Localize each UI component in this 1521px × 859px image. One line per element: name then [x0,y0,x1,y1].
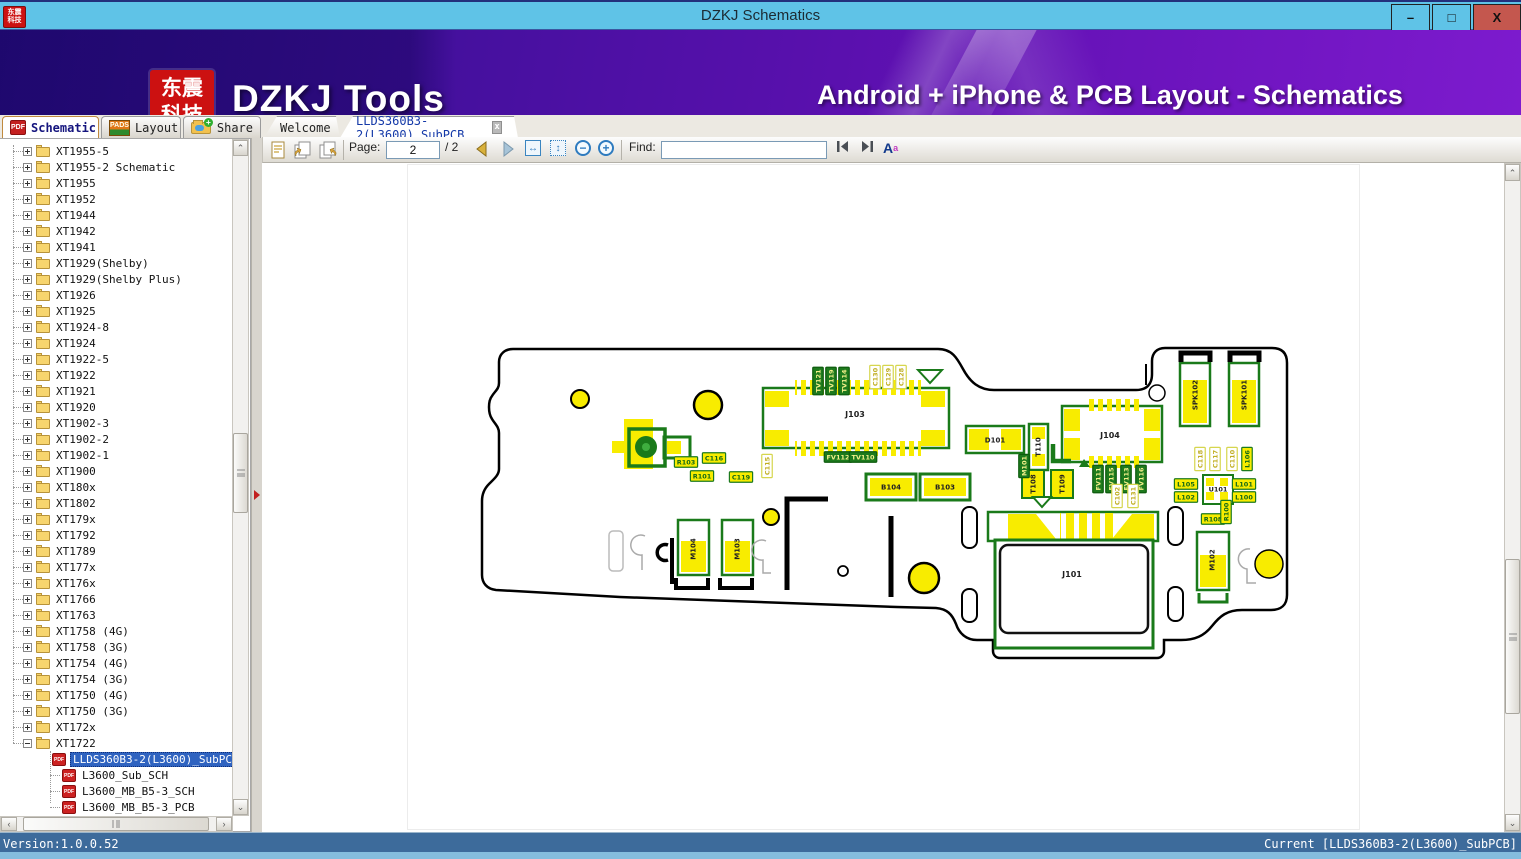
match-case-icon[interactable]: Aa [883,140,898,156]
folder-icon [36,385,51,397]
svg-text:TV114: TV114 [840,369,848,393]
tree-item-label: XT1922-5 [54,353,111,366]
expand-icon[interactable] [23,211,32,220]
brand-banner: 东震科技 DZKJ Tools Android + iPhone & PCB L… [0,30,1521,115]
tree-item-label: XT1941 [54,241,98,254]
tree-item-label: XT176x [54,577,98,590]
tree-item-label: XT1922 [54,369,98,382]
folder-icon [36,561,51,573]
expand-icon[interactable] [23,675,32,684]
pcb-drawing: TV121TV119TV114C130C129C128FV112TV110R10… [262,163,1504,832]
folder-icon [36,417,51,429]
tree-item-label: XT172x [54,721,98,734]
text-select-icon[interactable] [268,140,288,160]
expand-icon[interactable] [23,403,32,412]
tree-item-folder[interactable]: XT1722 [0,735,233,751]
previous-page-button[interactable] [473,140,491,158]
expand-icon[interactable] [23,243,32,252]
svg-text:J103: J103 [844,410,865,419]
tree-item-folder[interactable]: XT177x [0,559,233,575]
tree-item-pdf[interactable]: PDFL3600_Sub_SCH [0,767,233,783]
expand-icon[interactable] [23,339,32,348]
folder-icon [36,337,51,349]
next-page-button[interactable] [499,140,517,158]
expand-icon[interactable] [23,291,32,300]
viewer-vscroll-thumb[interactable] [1505,559,1520,714]
folder-icon [36,449,51,461]
tree-item-label: XT1942 [54,225,98,238]
expand-icon[interactable] [23,595,32,604]
tree-item-folder[interactable]: XT1802 [0,495,233,511]
expand-icon[interactable] [23,643,32,652]
tree-item-folder[interactable]: XT1789 [0,543,233,559]
tree-item-label: XT1924-8 [54,321,111,334]
tab-document-active[interactable]: LLDS360B3-2(L3600)_SubPCB x [340,116,518,138]
expand-icon[interactable] [23,659,32,668]
tree-item-label: XT1754 (4G) [54,657,131,670]
tree-item-folder[interactable]: XT1902-2 [0,431,233,447]
svg-text:C130: C130 [871,367,879,386]
tree-item-folder[interactable]: XT1955-5 [0,143,233,159]
tree-item-folder[interactable]: XT1921 [0,383,233,399]
viewer-scroll-up-icon[interactable]: ⌃ [1505,164,1520,181]
tab-welcome-label: Welcome [280,121,331,135]
collapse-arrow-icon[interactable] [254,490,260,500]
tree-item-label: XT1944 [54,209,98,222]
tree-item-folder[interactable]: XT1766 [0,591,233,607]
tree-item-label: XT1955-5 [54,145,111,158]
folder-icon [36,497,51,509]
tree-item-label: XT1900 [54,465,98,478]
next-view-icon[interactable] [317,140,339,160]
tree-item-label: XT1754 (3G) [54,673,131,686]
tree-item-folder[interactable]: XT176x [0,575,233,591]
tree-item-folder[interactable]: XT1929(Shelby Plus) [0,271,233,287]
app-window: 东震科技 DZKJ Schematics – □ X 东震科技 DZKJ Too… [0,0,1521,859]
svg-text:C110: C110 [1228,449,1236,468]
folder-icon [36,193,51,205]
expand-icon[interactable] [23,467,32,476]
scroll-up-icon[interactable]: ⌃ [233,140,248,156]
tree-item-label: L3600_Sub_SCH [80,769,170,782]
brand-title: DZKJ Tools [232,78,445,115]
tree-vertical-scrollbar[interactable]: ⌃ ⌄ [232,139,249,816]
pads-icon: PADS [109,120,130,136]
svg-text:M102: M102 [1209,549,1217,571]
banner-tagline: Android + iPhone & PCB Layout - Schemati… [790,80,1430,111]
find-previous-icon[interactable] [835,140,851,154]
viewer-toolbar: Page: / 2 ↔ ↕ − + Find: Aa [262,137,1521,163]
folder-icon [36,593,51,605]
expand-icon[interactable] [23,275,32,284]
svg-text:B103: B103 [935,484,955,492]
tree-item-folder[interactable]: XT1902-3 [0,415,233,431]
tree-item-label: XT1766 [54,593,98,606]
folder-icon [36,529,51,541]
folder-icon [36,353,51,365]
tree-vscroll-thumb[interactable] [233,433,248,513]
scroll-right-icon[interactable]: › [216,817,232,831]
expand-icon[interactable] [23,579,32,588]
tree-item-label: XT1722 [54,737,98,750]
tree-item-label: XT1929(Shelby Plus) [54,273,184,286]
tree-item-label: XT1926 [54,289,98,302]
svg-text:J104: J104 [1099,431,1120,440]
expand-icon[interactable] [23,227,32,236]
tree-item-folder[interactable]: XT1941 [0,239,233,255]
folder-icon [36,737,51,749]
tree-item-folder[interactable]: XT1900 [0,463,233,479]
svg-text:L101: L101 [1235,480,1253,488]
dzkj-logo: 东震科技 [150,70,214,115]
tree-hscroll-thumb[interactable] [23,817,209,831]
svg-text:U101: U101 [1209,485,1228,493]
expand-icon[interactable] [23,307,32,316]
status-bar: Version:1.0.0.52 Current [LLDS360B3-2(L3… [0,832,1521,859]
folder-icon [36,273,51,285]
svg-text:J101: J101 [1061,570,1082,579]
tree-item-folder[interactable]: XT1926 [0,287,233,303]
svg-text:C116: C116 [705,454,724,462]
tree-item-label: XT1925 [54,305,98,318]
tree-item-label: L3600_MB_B5-3_PCB [80,801,197,814]
page-number-input[interactable] [386,141,440,159]
tree-item-folder[interactable]: XT1924-8 [0,319,233,335]
fit-width-button[interactable]: ↔ [525,140,541,156]
expand-icon[interactable] [23,179,32,188]
svg-text:T109: T109 [1059,474,1067,494]
svg-text:L100: L100 [1235,493,1253,501]
folder-icon [36,609,51,621]
expand-icon[interactable] [23,323,32,332]
current-file-text: Current [LLDS360B3-2(L3600)_SubPCB] [1264,837,1517,851]
svg-text:M104: M104 [690,538,698,560]
svg-text:R100: R100 [1222,502,1230,521]
folder-icon [36,625,51,637]
tree-item-folder[interactable]: XT172x [0,719,233,735]
svg-text:TV119: TV119 [827,369,835,393]
tree-item-folder[interactable]: XT1920 [0,399,233,415]
tree-item-label: XT1902-3 [54,417,111,430]
expand-icon[interactable] [23,371,32,380]
tree-item-label: XT179x [54,513,98,526]
expand-icon[interactable] [23,547,32,556]
tab-schematic-label: Schematic [31,121,96,135]
scroll-left-icon[interactable]: ‹ [1,817,17,831]
tree-item-pdf[interactable]: PDFL3600_MB_B5-3_PCB [0,799,233,815]
share-folder-icon: + [191,120,212,135]
folder-tree: XT1955-5XT1955-2 SchematicXT1955XT1952XT… [0,139,233,816]
tree-item-label: XT1802 [54,497,98,510]
tree-item-label: XT1792 [54,529,98,542]
tree-item-folder[interactable]: XT1929(Shelby) [0,255,233,271]
folder-icon [36,673,51,685]
folder-icon [36,465,51,477]
tree-item-folder[interactable]: XT1924 [0,335,233,351]
schematic-tree-panel: XT1955-5XT1955-2 SchematicXT1955XT1952XT… [0,138,251,832]
tab-welcome[interactable]: Welcome [264,116,340,138]
tab-close-icon[interactable]: x [492,121,502,134]
expand-icon[interactable] [23,707,32,716]
pcb-connector-j101 [988,512,1158,648]
svg-text:C119: C119 [732,473,751,481]
tree-item-folder[interactable]: XT1955 [0,175,233,191]
expand-icon[interactable] [23,627,32,636]
tree-item-pdf[interactable]: PDFL3600_MB_B5-3_SCH [0,783,233,799]
tree-item-folder[interactable]: XT180x [0,479,233,495]
tree-item-label: XT180x [54,481,98,494]
tree-item-label: XT1920 [54,401,98,414]
pdf-file-icon: PDF [52,753,66,766]
fit-page-button[interactable]: ↕ [550,140,566,156]
svg-text:SPK101: SPK101 [1241,380,1249,410]
svg-text:R108: R108 [1204,515,1223,523]
tab-layout[interactable]: PADS Layout [101,116,181,138]
tree-item-label: XT1902-1 [54,449,111,462]
tree-item-label: LLDS360B3-2(L3600)_SubPCB [70,752,233,767]
svg-text:C128: C128 [897,367,905,386]
tree-horizontal-scrollbar[interactable]: ‹ › [0,816,233,832]
tree-item-folder[interactable]: XT1754 (4G) [0,655,233,671]
scroll-down-icon[interactable]: ⌄ [233,799,248,815]
folder-icon [36,305,51,317]
svg-text:SPK102: SPK102 [1192,380,1200,410]
expand-icon[interactable] [23,163,32,172]
expand-icon[interactable] [23,387,32,396]
tree-item-folder[interactable]: XT1922 [0,367,233,383]
svg-text:D101: D101 [985,437,1006,445]
folder-icon [36,369,51,381]
tree-item-folder[interactable]: XT179x [0,511,233,527]
expand-icon[interactable] [23,147,32,156]
tree-item-label: XT1763 [54,609,98,622]
svg-text:L102: L102 [1177,493,1195,501]
page-total: / 2 [445,140,458,154]
window-title: DZKJ Schematics [0,7,1521,24]
minimize-button[interactable]: – [1391,4,1430,31]
expand-icon[interactable] [23,499,32,508]
tree-item-folder[interactable]: XT1763 [0,607,233,623]
expand-icon[interactable] [23,195,32,204]
tree-item-label: XT1750 (4G) [54,689,131,702]
tree-item-pdf[interactable]: PDFLLDS360B3-2(L3600)_SubPCB [0,751,233,767]
expand-icon[interactable] [23,531,32,540]
folder-icon [36,161,51,173]
tree-item-label: XT177x [54,561,98,574]
tree-item-folder[interactable]: XT1750 (3G) [0,703,233,719]
expand-icon[interactable] [23,515,32,524]
expand-icon[interactable] [23,483,32,492]
svg-text:M101: M101 [1020,456,1028,477]
folder-icon [36,433,51,445]
expand-icon[interactable] [23,691,32,700]
prev-view-icon[interactable] [292,140,314,160]
folder-icon [36,545,51,557]
svg-text:R103: R103 [677,458,696,466]
svg-text:R101: R101 [693,472,712,480]
tree-item-label: XT1929(Shelby) [54,257,151,270]
zoom-out-button[interactable]: − [575,140,591,156]
folder-icon [36,705,51,717]
svg-text:FV112: FV112 [826,453,849,461]
folder-icon [36,577,51,589]
folder-icon [36,657,51,669]
tree-item-label: XT1758 (4G) [54,625,131,638]
svg-text:L105: L105 [1177,480,1195,488]
folder-icon [36,241,51,253]
expand-icon[interactable] [23,451,32,460]
folder-icon [36,289,51,301]
expand-icon[interactable] [23,435,32,444]
close-button[interactable]: X [1473,4,1521,31]
folder-icon [36,689,51,701]
tree-item-label: XT1921 [54,385,98,398]
folder-icon [36,721,51,733]
folder-icon [36,225,51,237]
find-input[interactable] [661,141,827,159]
tree-item-label: XT1955 [54,177,98,190]
svg-text:C115: C115 [763,456,771,475]
find-next-icon[interactable] [859,140,875,154]
tab-layout-label: Layout [135,121,178,135]
expand-icon[interactable] [23,611,32,620]
pdf-file-icon: PDF [62,801,76,814]
expand-icon[interactable] [23,723,32,732]
tab-schematic[interactable]: PDF Schematic [2,116,99,138]
tab-share-label: Share [217,121,253,135]
folder-icon [36,145,51,157]
tree-item-label: XT1924 [54,337,98,350]
tree-item-folder[interactable]: XT1942 [0,223,233,239]
tree-item-folder[interactable]: XT1922-5 [0,351,233,367]
tree-item-folder[interactable]: XT1925 [0,303,233,319]
svg-text:C118: C118 [1196,449,1204,468]
expand-icon[interactable] [23,259,32,268]
title-bar: 东震科技 DZKJ Schematics – □ X [0,0,1521,30]
svg-text:B104: B104 [881,484,901,492]
folder-icon [36,481,51,493]
find-label: Find: [629,140,656,154]
folder-icon [36,321,51,333]
tree-item-label: XT1902-2 [54,433,111,446]
pdf-file-icon: PDF [62,769,76,782]
panel-splitter[interactable] [251,138,262,832]
tree-item-folder[interactable]: XT1952 [0,191,233,207]
svg-text:T108: T108 [1030,474,1038,494]
svg-text:TV110: TV110 [851,453,875,461]
svg-text:TV121: TV121 [814,369,822,393]
tree-item-folder[interactable]: XT1792 [0,527,233,543]
tree-item-folder[interactable]: XT1955-2 Schematic [0,159,233,175]
tab-share[interactable]: + Share [183,116,261,138]
svg-text:FV111: FV111 [1094,467,1102,491]
tree-item-folder[interactable]: XT1754 (3G) [0,671,233,687]
status-bar-strip [0,852,1521,859]
folder-icon [36,641,51,653]
folder-icon [36,257,51,269]
tree-item-folder[interactable]: XT1758 (3G) [0,639,233,655]
zoom-in-button[interactable]: + [598,140,614,156]
expand-icon[interactable] [23,419,32,428]
tree-item-label: XT1952 [54,193,98,206]
svg-text:C129: C129 [884,367,892,386]
folder-icon [36,177,51,189]
tree-item-label: XT1955-2 Schematic [54,161,177,174]
viewer-vertical-scrollbar[interactable]: ⌃ ⌄ [1504,163,1521,832]
pdf-viewer-canvas[interactable]: TV121TV119TV114C130C129C128FV112TV110R10… [262,163,1504,832]
tree-item-folder[interactable]: XT1758 (4G) [0,623,233,639]
tree-item-folder[interactable]: XT1902-1 [0,447,233,463]
folder-icon [36,401,51,413]
pdf-icon: PDF [10,120,26,135]
expand-icon[interactable] [23,355,32,364]
svg-text:T110: T110 [1035,437,1043,457]
tree-item-folder[interactable]: XT1944 [0,207,233,223]
tree-item-label: XT1750 (3G) [54,705,131,718]
pdf-file-icon: PDF [62,785,76,798]
svg-text:L106: L106 [1243,450,1251,468]
viewer-scroll-down-icon[interactable]: ⌄ [1505,814,1520,831]
version-text: Version:1.0.0.52 [3,837,119,851]
tree-item-label: L3600_MB_B5-3_SCH [80,785,197,798]
svg-text:C117: C117 [1211,450,1219,468]
page-label: Page: [349,140,380,154]
tree-item-folder[interactable]: XT1750 (4G) [0,687,233,703]
svg-text:C131: C131 [1129,486,1137,505]
tree-item-label: XT1789 [54,545,98,558]
folder-icon [36,513,51,525]
svg-text:M103: M103 [734,538,742,560]
maximize-button[interactable]: □ [1432,4,1471,31]
tab-bar: PDF Schematic PADS Layout + Share Welcom… [0,115,1521,138]
folder-icon [36,209,51,221]
tree-item-label: XT1758 (3G) [54,641,131,654]
expand-icon[interactable] [23,563,32,572]
svg-text:C102: C102 [1113,487,1121,505]
collapse-icon[interactable] [23,739,32,748]
